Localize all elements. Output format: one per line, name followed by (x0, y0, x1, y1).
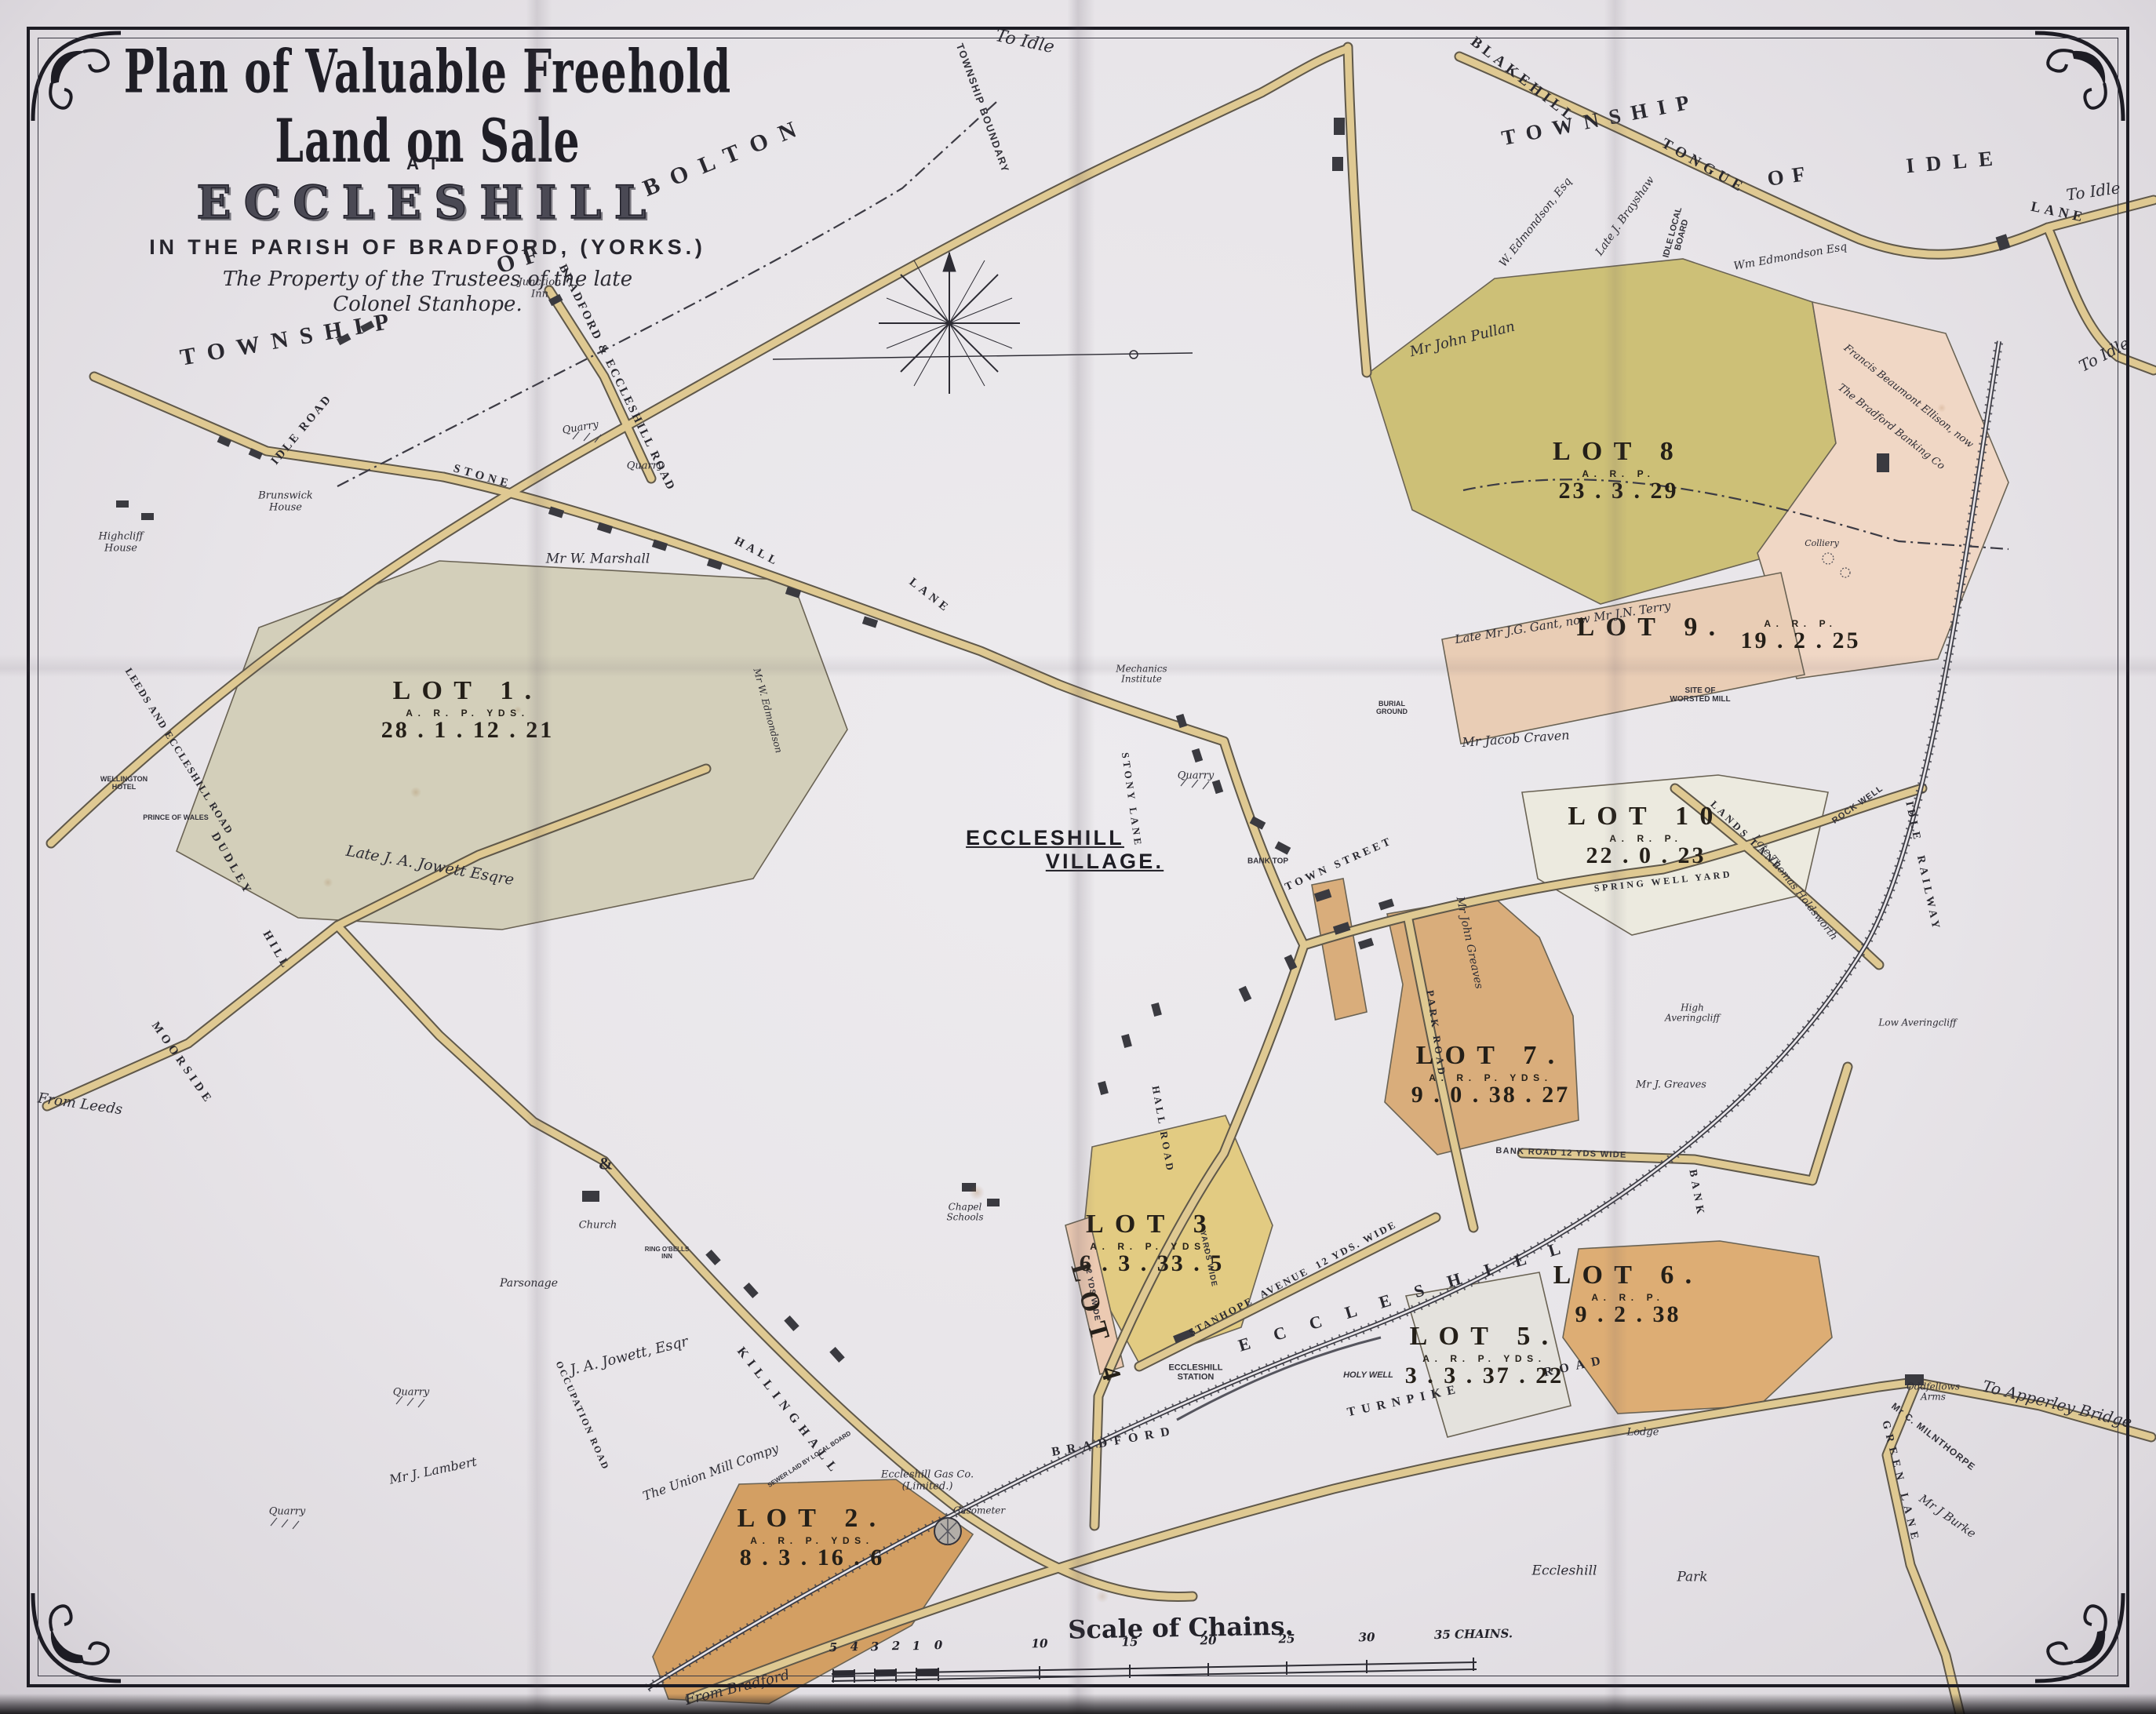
brunswick-house: Brunswick House (258, 490, 313, 513)
lot-3-title: LOT 3 (1080, 1210, 1225, 1239)
bank-top: BANK TOP (1247, 857, 1288, 865)
scale-tick-4: 4 (850, 1640, 859, 1654)
highcliff-house: Highcliff House (99, 531, 144, 554)
lot-9-area-values: 19 . 2 . 25 (1741, 628, 1861, 654)
scale-tick-20: 20 (1200, 1634, 1216, 1647)
scale-tick-10: 10 (1031, 1637, 1047, 1650)
lot-5-title: LOT 5. (1405, 1322, 1564, 1352)
junction-inn: Junction Inn (519, 277, 562, 300)
village-label-2: VILLAGE. (1046, 850, 1164, 873)
scale-bar[interactable] (832, 1658, 1477, 1683)
scale-tick-5: 5 (829, 1641, 838, 1654)
page-title: Plan of Valuable Freehold Land on Sale (102, 38, 753, 176)
eccleshill-park-1: Eccleshill (1532, 1563, 1597, 1578)
ring-o-bells-inn: RING O'BELLS INN (645, 1246, 690, 1261)
holy-well: HOLY WELL (1343, 1370, 1393, 1380)
lot-8-values: 23 . 3 . 29 (1553, 478, 1684, 504)
mechanics-institute: Mechanics Institute (1116, 664, 1167, 686)
scale-tick-25: 25 (1278, 1632, 1295, 1646)
lot-10-values: 22 . 0 . 23 (1568, 842, 1724, 869)
lodge: Lodge (1627, 1428, 1659, 1439)
lot-9-title: LOT 9. (1577, 613, 1727, 642)
lot-9-label: LOT 9. (1577, 613, 1727, 642)
oddfellows-arms: Oddfellows Arms (1907, 1382, 1960, 1403)
scale-tick-1: 1 (912, 1639, 921, 1653)
lot-2-label: LOT 2.A. R. P. YDS.8 . 3 . 16 . 6 (737, 1504, 887, 1571)
lot-10-title: LOT 10 (1568, 802, 1724, 832)
high-averingcliff: High Averingcliff (1665, 1003, 1720, 1024)
eccleshill-gas-co: Eccleshill Gas Co. (Limited.) (881, 1469, 974, 1492)
eccleshill-park-2: Park (1677, 1570, 1707, 1585)
lot-3-label: LOT 3A. R. P. YDS.6 . 3 . 33 . 5 (1080, 1210, 1225, 1277)
title-property-1: The Property of the Trustees of the late (102, 267, 753, 291)
scale-tick-3: 3 (871, 1640, 880, 1654)
scale-tick-30: 30 (1358, 1631, 1375, 1644)
lot-6-values: 9 . 2 . 38 (1553, 1301, 1703, 1328)
scale-tick-35: 35 CHAINS. (1434, 1627, 1513, 1642)
lot-7-title: LOT 7. (1411, 1041, 1571, 1071)
compass-rose (773, 253, 1193, 394)
scale-tick-0: 0 (934, 1639, 943, 1652)
gasometer-label: Gasometer (953, 1505, 1005, 1516)
eccleshill-station: ECCLESHILL STATION (1168, 1363, 1222, 1383)
lot-8-title: LOT 8 (1553, 437, 1684, 467)
lot-2-title: LOT 2. (737, 1504, 887, 1534)
lot-5-values: 3 . 3 . 37 . 22 (1405, 1363, 1564, 1389)
lot-3-values: 6 . 3 . 33 . 5 (1080, 1250, 1225, 1277)
wellington-hotel: WELLINGTON HOTEL (100, 775, 147, 791)
quarry-5: Quarry (269, 1507, 306, 1519)
gasometer (934, 1518, 961, 1545)
site-of-worsted-mill: SITE OF WORSTED MILL (1670, 686, 1730, 704)
quarry-3: Quarry (1178, 771, 1215, 783)
lot-10-label: LOT 10A. R. P.22 . 0 . 23 (1568, 802, 1724, 869)
lot-1-values: 28 . 1 . 12 . 21 (381, 717, 555, 744)
title-property-2: Colonel Stanhope. (102, 293, 753, 316)
lot-9-parcel (1442, 573, 1805, 744)
lot-6-label: LOT 6.A. R. P.9 . 2 . 38 (1553, 1261, 1703, 1328)
chapel-schools: Chapel Schools (946, 1203, 983, 1224)
owner-j-greaves: Mr J. Greaves (1636, 1080, 1706, 1092)
lot-1-label: LOT 1.A. R. P. YDS.28 . 1 . 12 . 21 (381, 676, 555, 744)
colliery: Colliery (1805, 539, 1839, 548)
lot-5-label: LOT 5.A. R. P. YDS.3 . 3 . 37 . 22 (1405, 1322, 1564, 1389)
parsonage: Parsonage (500, 1278, 558, 1290)
lot-7-values: 9 . 0 . 38 . 27 (1411, 1082, 1571, 1108)
scale-tick-15: 15 (1121, 1636, 1138, 1649)
low-averingcliff: Low Averingcliff (1878, 1017, 1956, 1028)
lot-8-label: LOT 8A. R. P.23 . 3 . 29 (1553, 437, 1684, 504)
quarry-2: Quarry (627, 461, 664, 473)
quarry-4: Quarry (393, 1388, 430, 1399)
map-sheet: Plan of Valuable Freehold Land on Sale A… (0, 0, 2156, 1714)
lot-2-values: 8 . 3 . 16 . 6 (737, 1545, 887, 1571)
village-label-1: ECCLESHILL (966, 826, 1124, 850)
lot-7-label: LOT 7.A. R. P. YDS.9 . 0 . 38 . 27 (1411, 1041, 1571, 1108)
prince-of-wales: PRINCE OF WALES (143, 813, 209, 821)
scale-tick-2: 2 (892, 1639, 901, 1653)
lot-6-title: LOT 6. (1553, 1261, 1703, 1290)
lot-1-title: LOT 1. (381, 676, 555, 706)
lot-9-area-label: A. R. P.19 . 2 . 25 (1741, 617, 1861, 654)
scale-title: Scale of Chains. (1068, 1613, 1294, 1645)
owner-w-marshall: Mr W. Marshall (546, 551, 650, 566)
title-parish: IN THE PARISH OF BRADFORD, (YORKS.) (102, 235, 753, 260)
church: Church (579, 1221, 617, 1232)
road-ampersand: & (599, 1155, 613, 1174)
burial-ground: BURIAL GROUND (1376, 700, 1408, 715)
